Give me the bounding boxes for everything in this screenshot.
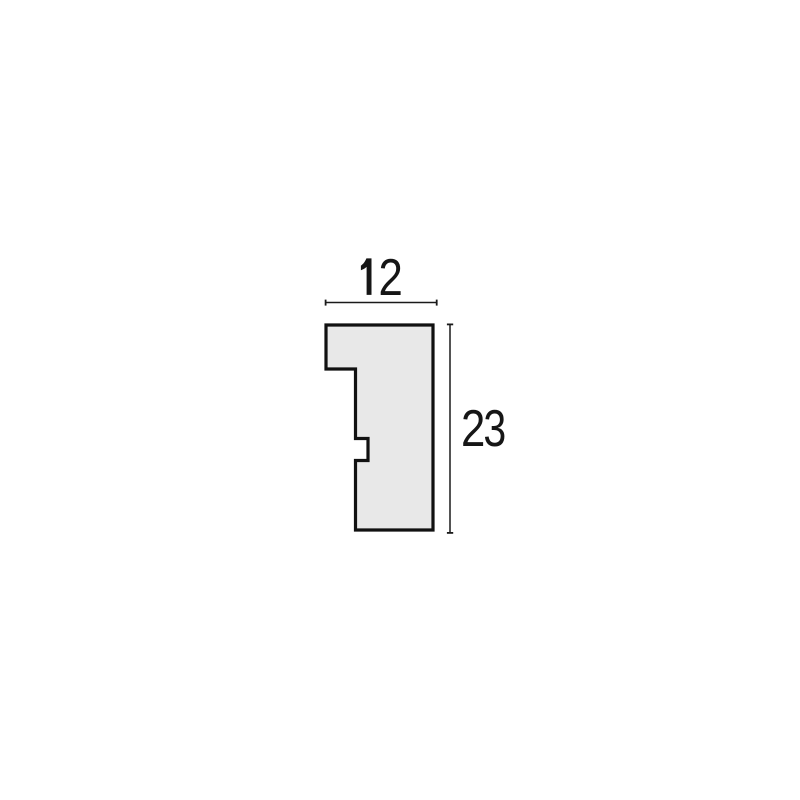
svg-text:2: 2 <box>461 401 485 458</box>
svg-text:3: 3 <box>483 400 506 458</box>
svg-text:2: 2 <box>378 249 402 306</box>
